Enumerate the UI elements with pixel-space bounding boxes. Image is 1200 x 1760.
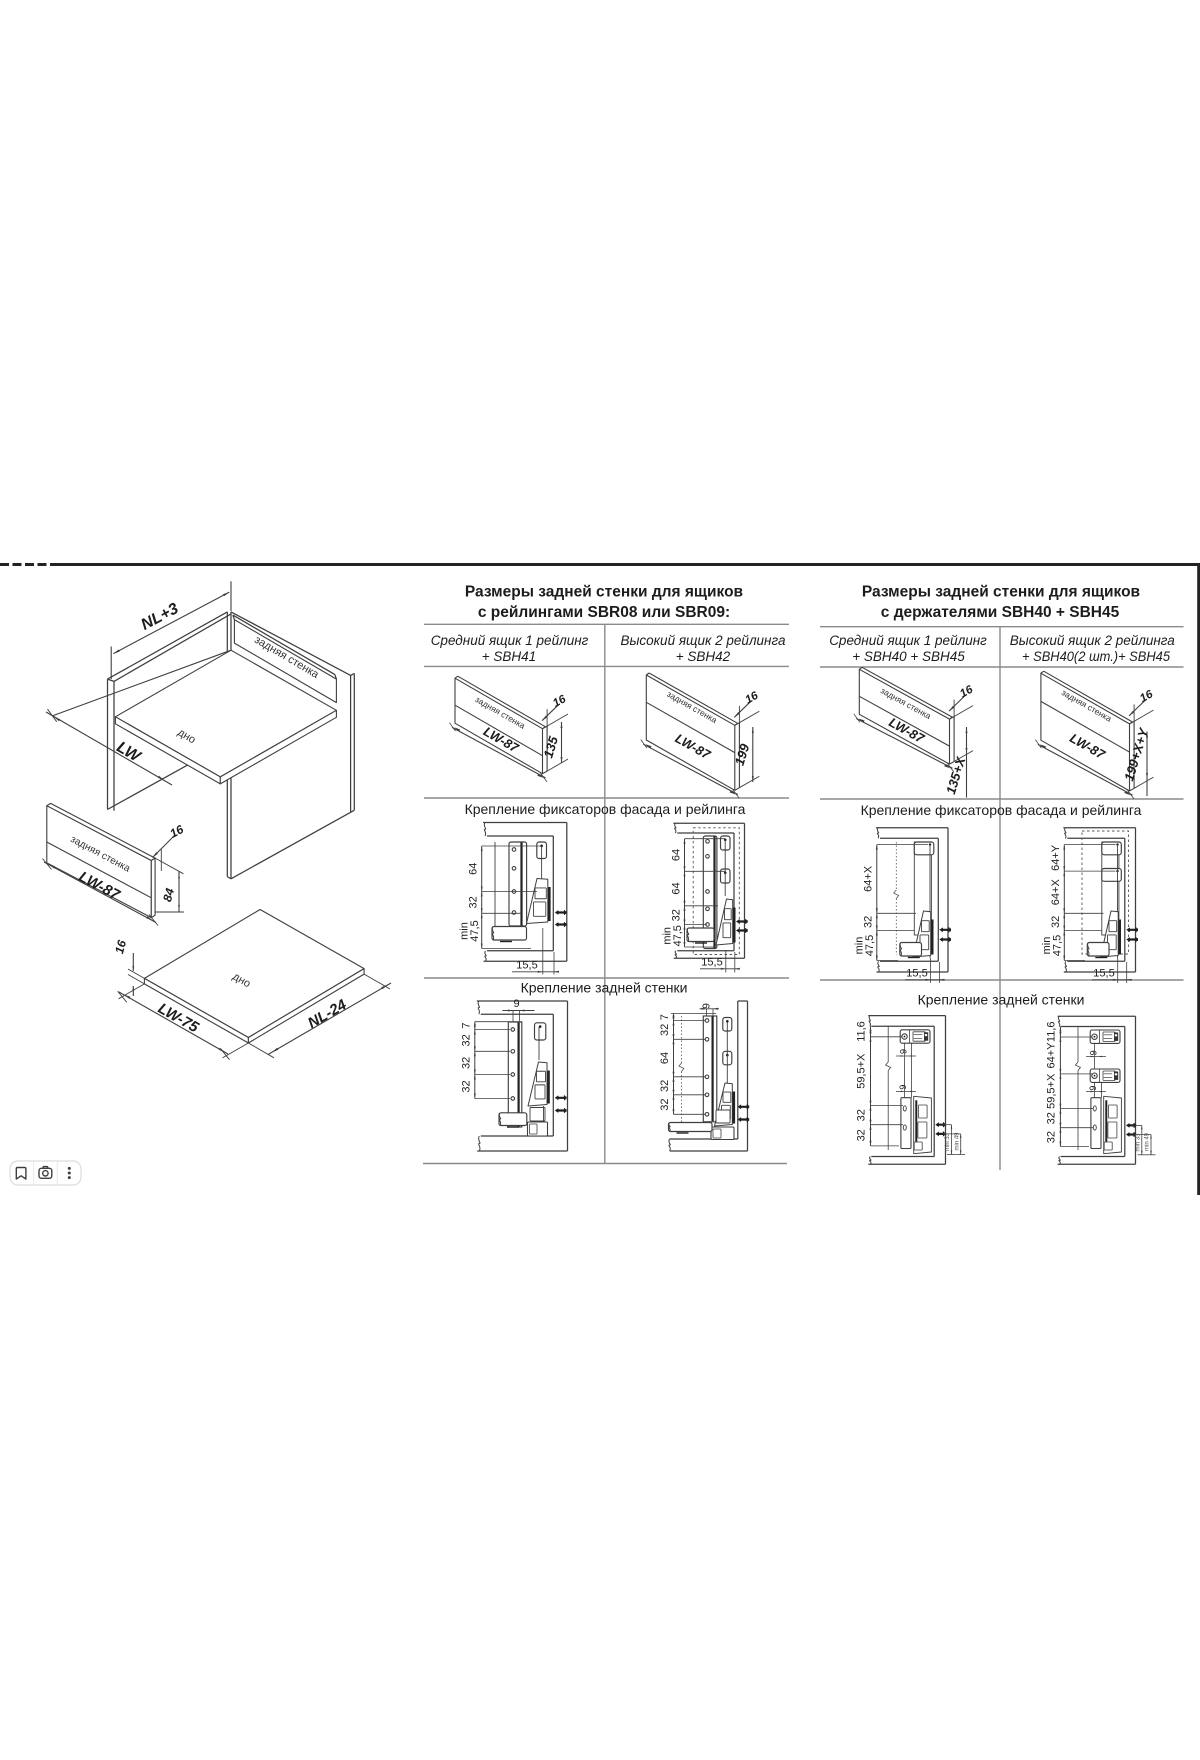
svg-text:9: 9 (1088, 1086, 1098, 1091)
svg-text:9: 9 (898, 1085, 908, 1090)
svg-text:Высокий ящик 2 рейлинга: Высокий ящик 2 рейлинга (620, 633, 786, 648)
svg-text:64+X: 64+X (863, 865, 875, 892)
svg-text:Крепление задней стенки: Крепление задней стенки (918, 992, 1085, 1008)
svg-text:с рейлингами SBR08 или SBR09:: с рейлингами SBR08 или SBR09: (478, 604, 730, 621)
svg-text:47,5: 47,5 (864, 935, 876, 956)
svg-text:9: 9 (702, 1003, 713, 1009)
svg-text:Крепление фиксаторов фасада и: Крепление фиксаторов фасада и рейлинга (861, 802, 1142, 818)
svg-text:Крепление задней стенки: Крепление задней стенки (521, 980, 688, 996)
svg-text:32: 32 (863, 916, 875, 928)
svg-text:7: 7 (659, 1014, 671, 1020)
svg-text:7: 7 (460, 1023, 472, 1029)
svg-text:с держателями SBH40 + SBH45: с держателями SBH40 + SBH45 (881, 604, 1120, 621)
svg-text:min 33: min 33 (945, 1132, 951, 1151)
svg-text:32: 32 (467, 896, 479, 908)
svg-text:47,5: 47,5 (1052, 935, 1064, 956)
svg-text:+ SBH40(2 шт.)+ SBH45: + SBH40(2 шт.)+ SBH45 (1022, 649, 1170, 664)
svg-text:32: 32 (460, 1057, 472, 1069)
svg-text:11,6: 11,6 (856, 1021, 868, 1042)
svg-text:Средний ящик 1 рейлинг: Средний ящик 1 рейлинг (431, 633, 589, 648)
svg-text:32: 32 (659, 1024, 671, 1036)
svg-text:64: 64 (670, 882, 682, 894)
svg-text:32: 32 (460, 1034, 472, 1046)
svg-text:64: 64 (670, 849, 682, 861)
svg-text:32: 32 (659, 1080, 671, 1092)
svg-text:9: 9 (513, 998, 519, 1010)
svg-text:47,5: 47,5 (469, 920, 481, 941)
svg-text:Размеры задней стенки для ящик: Размеры задней стенки для ящиков (465, 583, 743, 600)
svg-text:+ SBH41: + SBH41 (482, 649, 536, 664)
svg-text:11,6: 11,6 (1045, 1022, 1057, 1043)
svg-text:59,5+X: 59,5+X (856, 1053, 868, 1089)
svg-text:min 49: min 49 (1145, 1132, 1151, 1151)
svg-text:Средний ящик 1 рейлинг: Средний ящик 1 рейлинг (829, 633, 987, 648)
svg-text:15,5: 15,5 (1093, 967, 1114, 979)
svg-text:Крепление фиксаторов фасада и: Крепление фиксаторов фасада и рейлинга (465, 801, 746, 817)
svg-text:64+Y: 64+Y (1050, 844, 1062, 871)
svg-text:15,5: 15,5 (906, 967, 927, 979)
svg-text:Размеры задней стенки для ящик: Размеры задней стенки для ящиков (862, 583, 1140, 600)
svg-text:32: 32 (856, 1109, 868, 1121)
svg-text:min 49: min 49 (954, 1132, 960, 1151)
svg-text:9: 9 (899, 1049, 909, 1054)
svg-text:+ SBH40 + SBH45: + SBH40 + SBH45 (852, 649, 965, 664)
svg-text:64+Y: 64+Y (1045, 1042, 1057, 1069)
svg-text:64: 64 (467, 863, 479, 875)
svg-text:47,5: 47,5 (672, 925, 684, 946)
svg-text:64+X: 64+X (1050, 879, 1062, 906)
svg-text:32: 32 (856, 1129, 868, 1141)
svg-text:59,5+X: 59,5+X (1045, 1073, 1057, 1109)
svg-text:32: 32 (460, 1080, 472, 1092)
svg-text:32: 32 (1050, 916, 1062, 928)
svg-text:9: 9 (1089, 1050, 1099, 1055)
svg-text:min 33: min 33 (1136, 1133, 1142, 1152)
svg-text:32: 32 (1045, 1112, 1057, 1124)
svg-text:15,5: 15,5 (516, 959, 537, 971)
svg-text:32: 32 (659, 1098, 671, 1110)
svg-text:32: 32 (670, 909, 682, 921)
svg-text:15,5: 15,5 (701, 956, 722, 968)
svg-text:Высокий ящик 2 рейлинга: Высокий ящик 2 рейлинга (1010, 633, 1176, 648)
svg-text:32: 32 (1045, 1131, 1057, 1143)
svg-text:64: 64 (659, 1052, 671, 1064)
svg-text:+ SBH42: + SBH42 (676, 649, 731, 664)
